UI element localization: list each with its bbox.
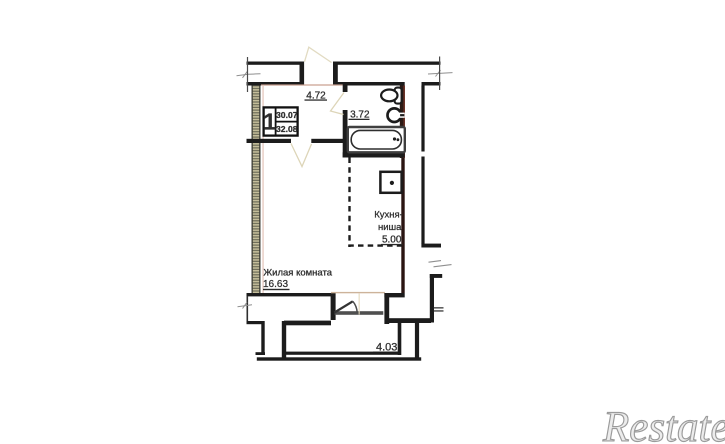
svg-text:Restate: Restate	[602, 404, 725, 444]
svg-text:16.63: 16.63	[263, 279, 288, 290]
svg-text:3.72: 3.72	[350, 109, 370, 120]
svg-text:32.08: 32.08	[276, 124, 298, 134]
svg-text:Кухня-: Кухня-	[374, 210, 403, 221]
svg-text:Жилая комната: Жилая комната	[263, 267, 332, 278]
svg-text:1: 1	[263, 109, 276, 135]
svg-text:30.07: 30.07	[276, 110, 298, 120]
svg-text:ниша: ниша	[378, 222, 402, 233]
